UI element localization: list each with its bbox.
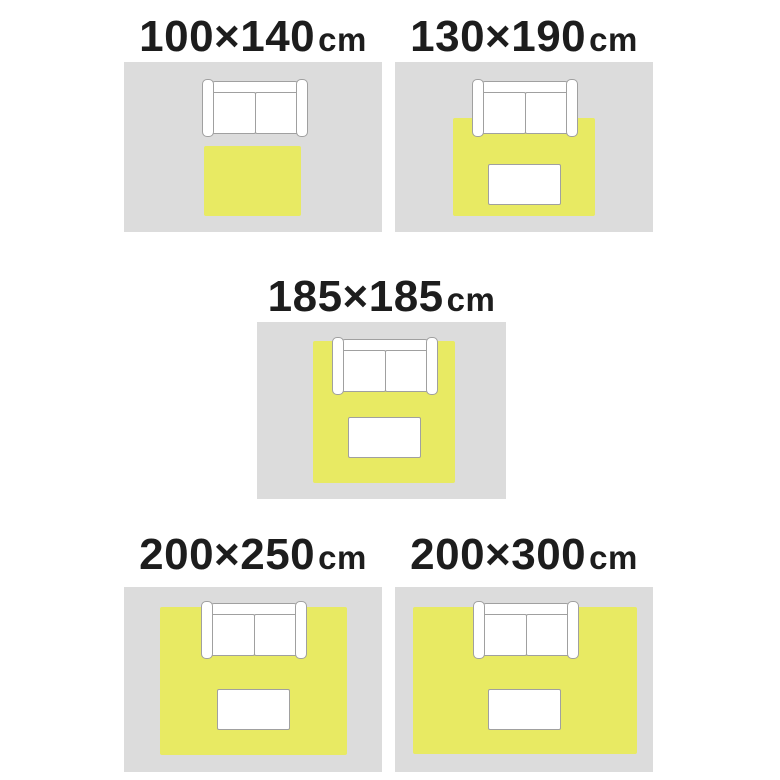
sofa-seat-cushion-left <box>482 614 527 656</box>
sofa-armrest-left <box>201 601 213 659</box>
size-unit: cm <box>318 539 367 576</box>
sofa-armrest-right <box>426 337 438 395</box>
sofa-seat-cushion-left <box>481 92 526 134</box>
room-floor-200x300 <box>395 587 653 772</box>
size-unit: cm <box>589 539 638 576</box>
size-unit: cm <box>447 281 496 318</box>
sofa-armrest-left <box>332 337 344 395</box>
sofa-top-view <box>202 79 308 137</box>
sofa-seat-cushion-left <box>210 614 255 656</box>
size-unit: cm <box>589 21 638 58</box>
size-value: 200×250 <box>139 530 315 579</box>
sofa-armrest-left <box>472 79 484 137</box>
sofa-armrest-right <box>566 79 578 137</box>
sofa-seat-cushion-left <box>341 350 386 392</box>
size-unit: cm <box>318 21 367 58</box>
size-value: 200×300 <box>410 530 586 579</box>
size-label-200x300: 200×300cm <box>395 533 653 577</box>
sofa-seat-cushion-right <box>525 92 570 134</box>
sofa-top-view <box>473 601 579 659</box>
room-floor-130x190 <box>395 62 653 232</box>
size-value: 185×185 <box>268 272 444 321</box>
size-label-130x190: 130×190cm <box>395 15 653 59</box>
sofa-seat-cushion-left <box>211 92 256 134</box>
sofa-armrest-right <box>296 79 308 137</box>
sofa-seat-cushion-right <box>255 92 300 134</box>
size-label-100x140: 100×140cm <box>124 15 382 59</box>
rug-100x140 <box>204 146 301 216</box>
sofa-top-view <box>472 79 578 137</box>
sofa-armrest-right <box>295 601 307 659</box>
low-table-top-view <box>348 417 421 458</box>
sofa-armrest-left <box>473 601 485 659</box>
sofa-armrest-right <box>567 601 579 659</box>
room-floor-185x185 <box>257 322 506 499</box>
size-label-200x250: 200×250cm <box>124 533 382 577</box>
sofa-seat-cushion-right <box>526 614 571 656</box>
rug-size-guide: 100×140cm 130×190cm 185×185cm <box>0 0 780 780</box>
room-floor-100x140 <box>124 62 382 232</box>
sofa-armrest-left <box>202 79 214 137</box>
low-table-top-view <box>217 689 290 730</box>
low-table-top-view <box>488 164 561 205</box>
size-value: 100×140 <box>139 12 315 61</box>
size-value: 130×190 <box>410 12 586 61</box>
size-label-185x185: 185×185cm <box>257 275 506 319</box>
sofa-top-view <box>332 337 438 395</box>
sofa-top-view <box>201 601 307 659</box>
sofa-seat-cushion-right <box>254 614 299 656</box>
low-table-top-view <box>488 689 561 730</box>
room-floor-200x250 <box>124 587 382 772</box>
sofa-seat-cushion-right <box>385 350 430 392</box>
